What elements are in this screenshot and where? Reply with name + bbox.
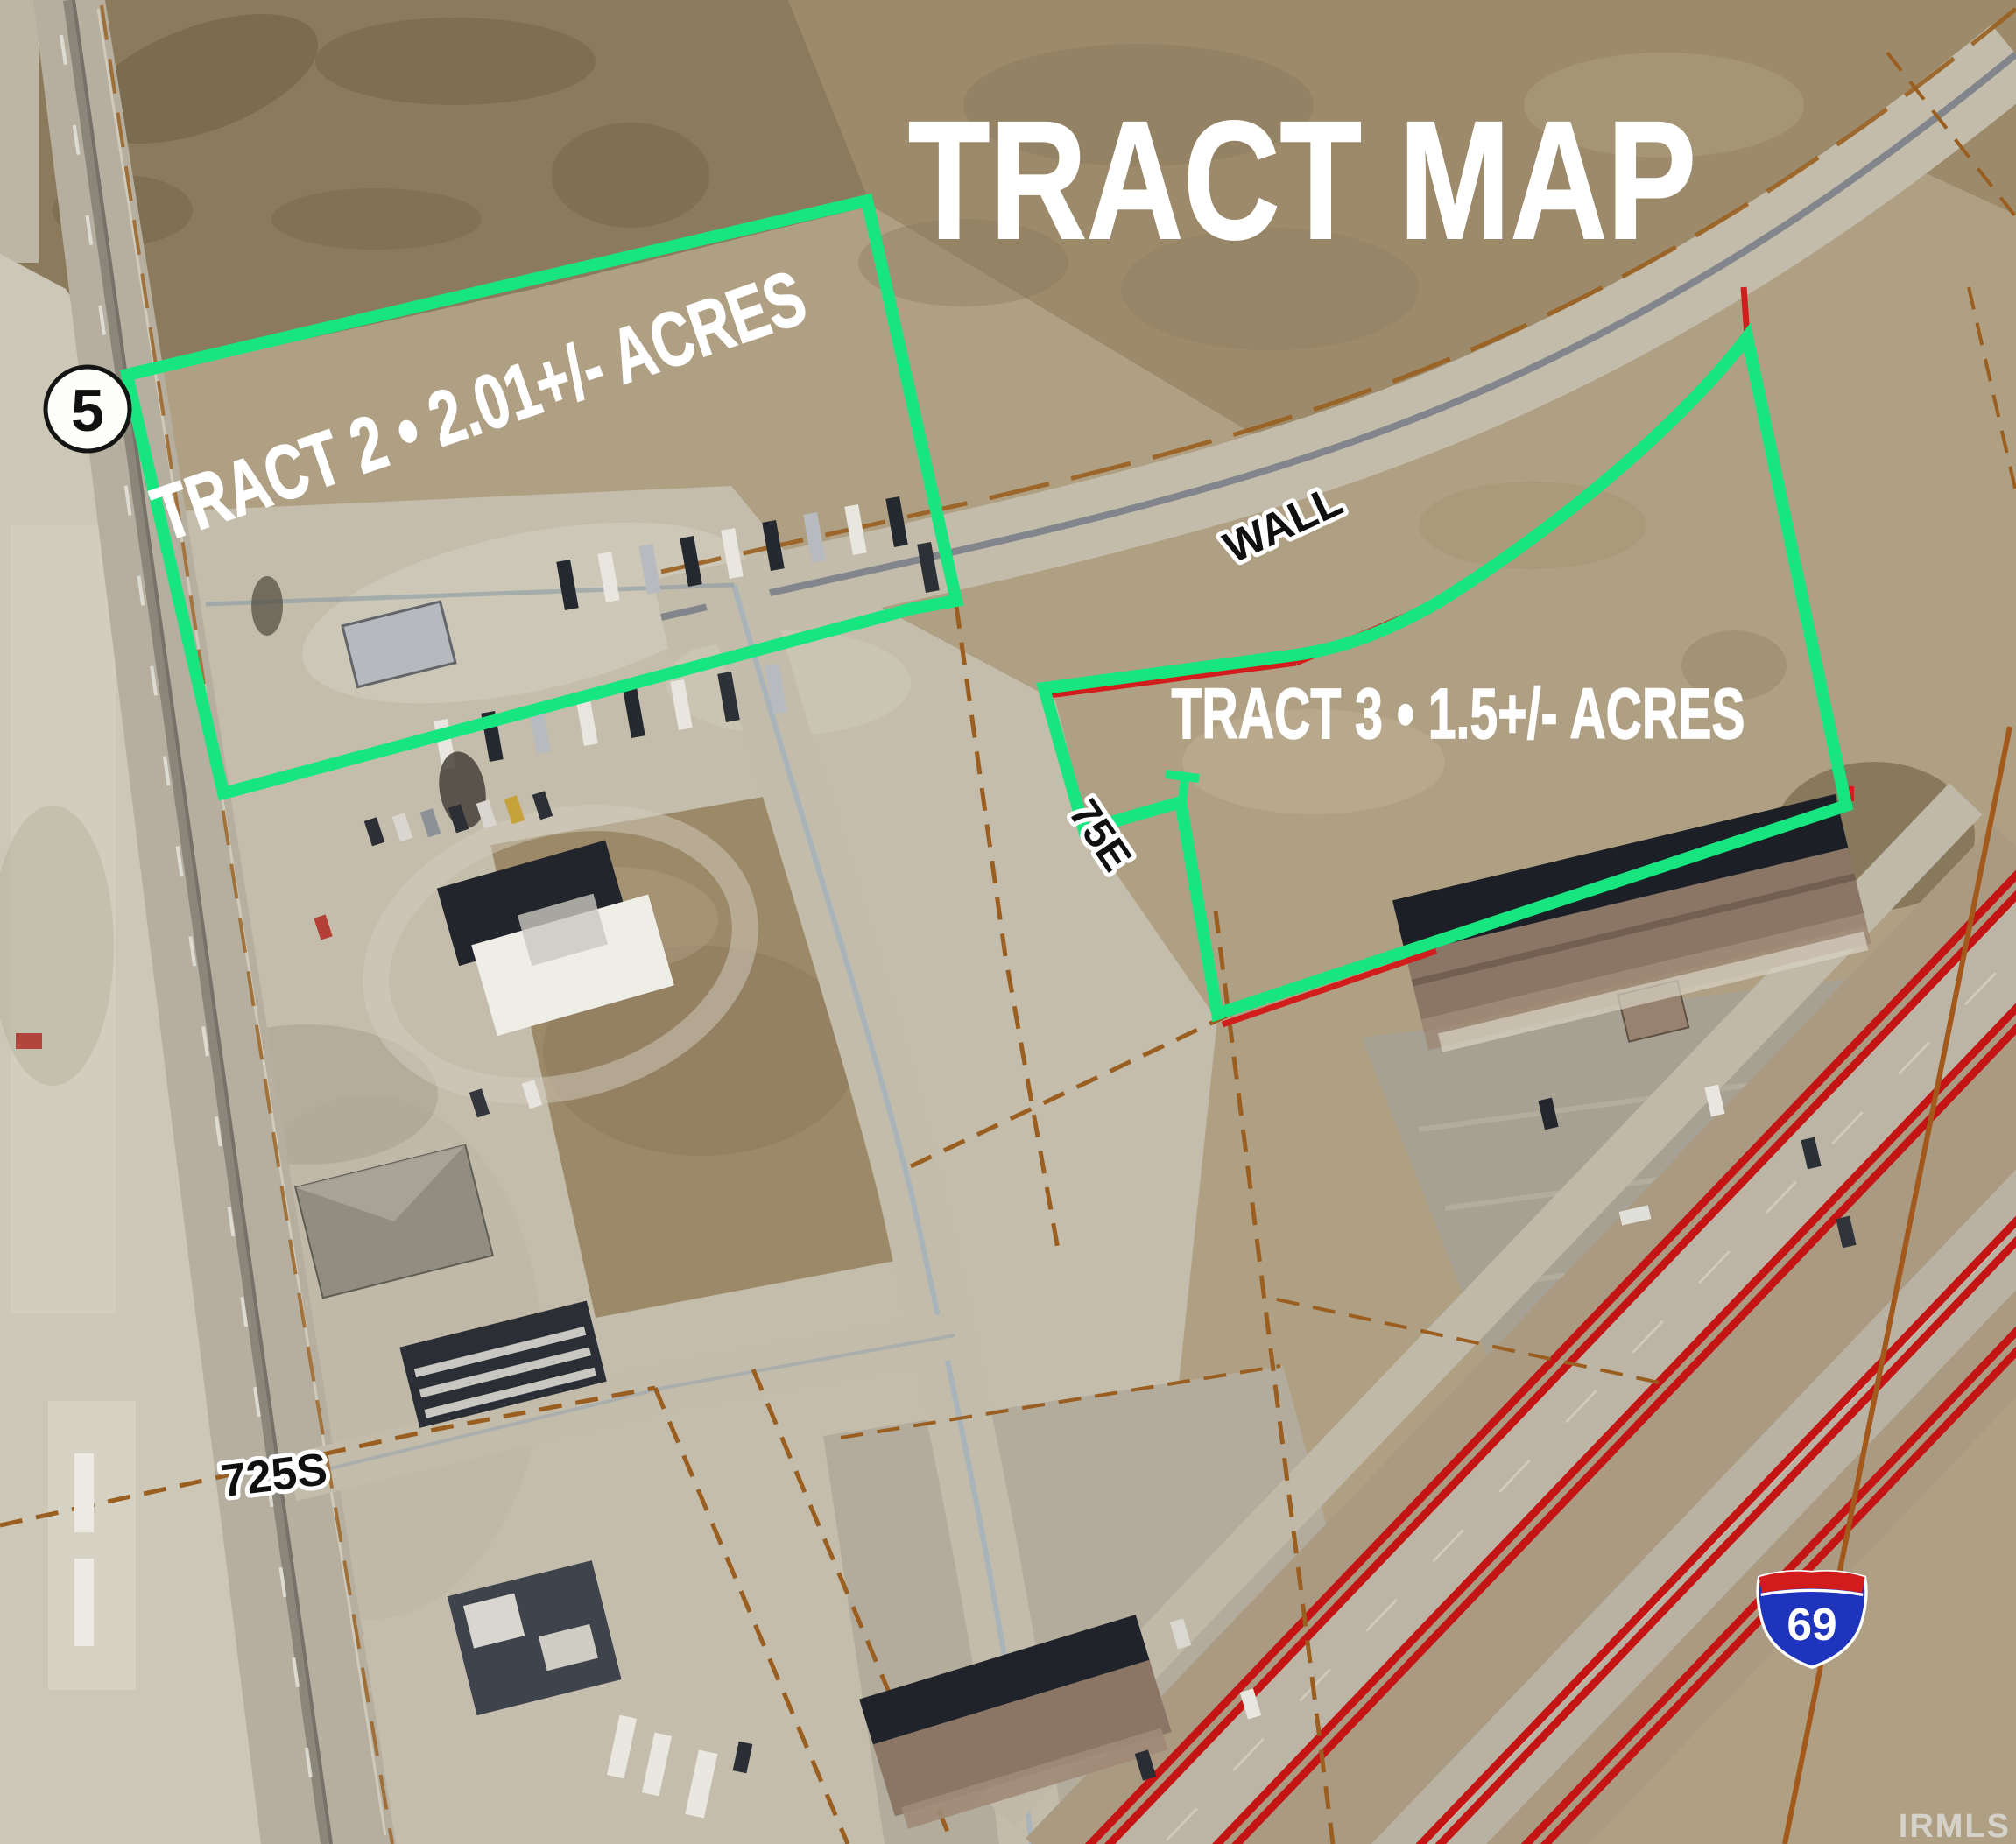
state-route-5-number: 5 (71, 377, 104, 444)
irmls-watermark: IRMLS (1899, 1808, 2011, 1844)
tract-map-page: TRACT MAP TRACT 2 • 2.01+/- ACRES TRACT … (0, 0, 2016, 1844)
tree (251, 576, 283, 636)
tract3-label: TRACT 3 • 1.5+/- ACRES (1172, 674, 1745, 754)
interstate-69-number: 69 (1787, 1599, 1836, 1650)
page-title: TRACT MAP (908, 86, 1696, 274)
state-route-5-shield-icon: 5 (46, 367, 130, 451)
aerial-tract-map: TRACT MAP TRACT 2 • 2.01+/- ACRES TRACT … (0, 0, 2016, 1844)
